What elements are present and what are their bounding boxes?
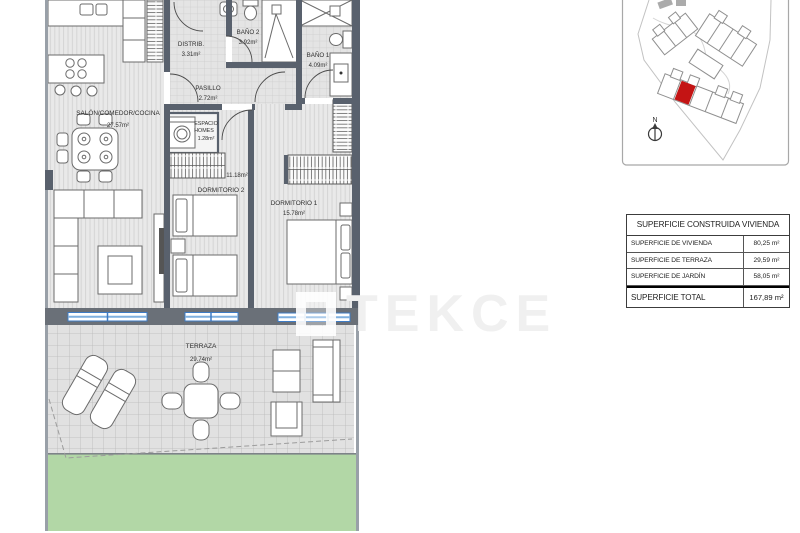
row-label: SUPERFICIE DE VIVIENDA — [627, 236, 743, 252]
windows — [68, 313, 350, 322]
table-row: SUPERFICIE DE JARDÍN 58,05 m² — [627, 269, 789, 286]
table-row: SUPERFICIE DE VIVIENDA 80,25 m² — [627, 236, 789, 253]
room-label-dormitorio1: DORMITORIO 1 — [271, 200, 318, 207]
room-label-terraza: TERRAZA — [186, 343, 217, 350]
room-label-espacio-1: ESPACIO — [194, 121, 218, 127]
surface-table-header: SUPERFICIE CONSTRUIDA VIVIENDA — [627, 215, 789, 236]
room-label-bano2: BAÑO 2 — [237, 29, 260, 36]
total-value: 167,89 m² — [743, 288, 789, 307]
washing-machine-icon — [169, 117, 195, 148]
total-label: SUPERFICIE TOTAL — [627, 288, 743, 307]
site-map: N — [620, 0, 790, 170]
row-value: 29,59 m² — [743, 253, 789, 269]
table-total-row: SUPERFICIE TOTAL 167,89 m² — [627, 286, 789, 307]
surface-table: SUPERFICIE CONSTRUIDA VIVIENDA SUPERFICI… — [626, 214, 790, 308]
room-area-salon: 27.57m² — [107, 123, 129, 129]
room-label-salon: SALÓN/COMEDOR/COCINA — [76, 108, 160, 117]
row-label: SUPERFICIE DE TERRAZA — [627, 253, 743, 269]
toilet-tank-icon — [343, 31, 352, 48]
window — [68, 313, 147, 322]
room-area-bano2: 3.92m² — [239, 40, 258, 46]
room-label-pasillo: PASILLO — [195, 85, 221, 92]
tv-icon — [159, 228, 164, 274]
row-value: 58,05 m² — [743, 269, 789, 285]
room-area-dormitorio2: 11.18m² — [226, 173, 248, 179]
room-label-espacio-2: HOMES — [194, 128, 214, 134]
bathroom1-fixtures — [330, 31, 353, 96]
window — [185, 313, 238, 322]
shower-top-right — [300, 0, 352, 26]
room-area-distrib: 3.31m² — [182, 52, 201, 58]
garden-area — [46, 454, 357, 531]
toilet-icon — [245, 6, 257, 20]
room-label-distrib: DISTRIB. — [178, 41, 204, 48]
north-label: N — [652, 117, 657, 124]
window — [278, 313, 350, 322]
room-label-bano1: BAÑO 1 — [307, 52, 330, 59]
page: SALÓN/COMEDOR/COCINA 27.57m² DISTRIB. 3.… — [0, 0, 800, 533]
row-label: SUPERFICIE DE JARDÍN — [627, 269, 743, 285]
room-area-espacio: 1.28m² — [198, 136, 215, 142]
room-area-bano1: 4.09m² — [309, 63, 328, 69]
toilet-tank-icon — [243, 0, 258, 6]
room-area-pasillo: 2.72m² — [199, 96, 218, 102]
room-area-terraza: 29.74m² — [190, 357, 212, 363]
row-value: 80,25 m² — [743, 236, 789, 252]
table-row: SUPERFICIE DE TERRAZA 29,59 m² — [627, 253, 789, 270]
room-area-dormitorio1: 15.78m² — [283, 211, 305, 217]
toilet-icon — [330, 34, 343, 46]
room-label-dormitorio2: DORMITORIO 2 — [198, 187, 245, 194]
